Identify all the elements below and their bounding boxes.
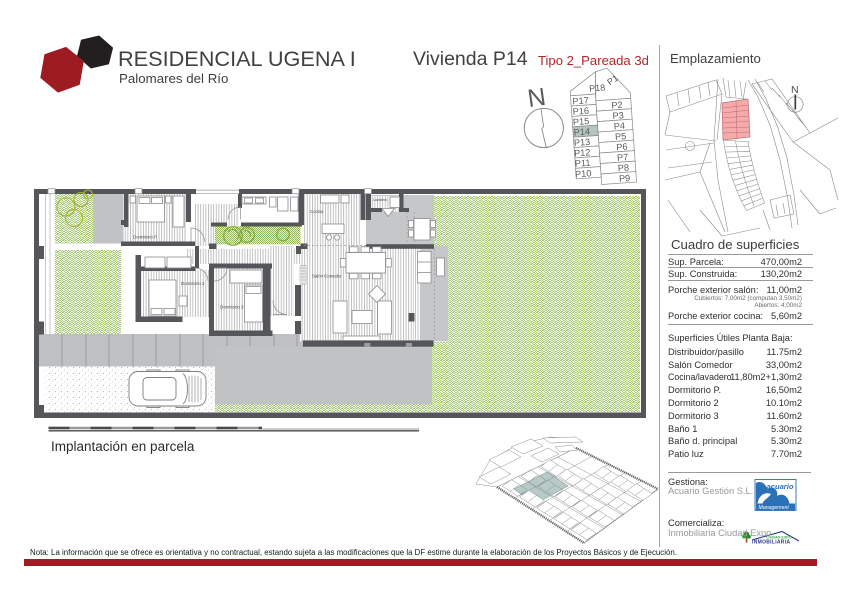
svg-text:P13: P13 [574,137,591,148]
svg-text:P2: P2 [611,100,623,111]
svg-text:P14: P14 [573,126,590,137]
svg-text:P3: P3 [612,110,624,121]
svg-text:Salón Comedor: Salón Comedor [312,274,342,279]
svg-text:Dormitorio 3: Dormitorio 3 [220,305,244,310]
svg-text:INMOBILIARIA: INMOBILIARIA [752,540,790,546]
svg-text:Cocina: Cocina [310,209,324,214]
svg-text:P8: P8 [617,163,629,174]
svg-text:Lavadero: Lavadero [373,198,387,202]
svg-text:P9: P9 [619,173,631,184]
svg-text:P7: P7 [617,152,629,163]
svg-text:P16: P16 [572,106,589,117]
svg-text:P17: P17 [572,95,589,106]
svg-text:Dormitorio P.: Dormitorio P. [133,235,158,240]
svg-text:Management: Management [759,505,790,511]
svg-text:Dormitorio 2: Dormitorio 2 [181,281,205,286]
svg-text:P18: P18 [589,83,606,94]
svg-text:P15: P15 [573,116,590,127]
svg-text:P4: P4 [613,121,625,132]
svg-text:N: N [791,84,799,96]
svg-text:P6: P6 [616,142,628,153]
svg-text:P11: P11 [574,158,590,169]
svg-text:P10: P10 [575,168,592,179]
svg-text:P12: P12 [574,147,591,158]
svg-text:P5: P5 [615,131,627,142]
